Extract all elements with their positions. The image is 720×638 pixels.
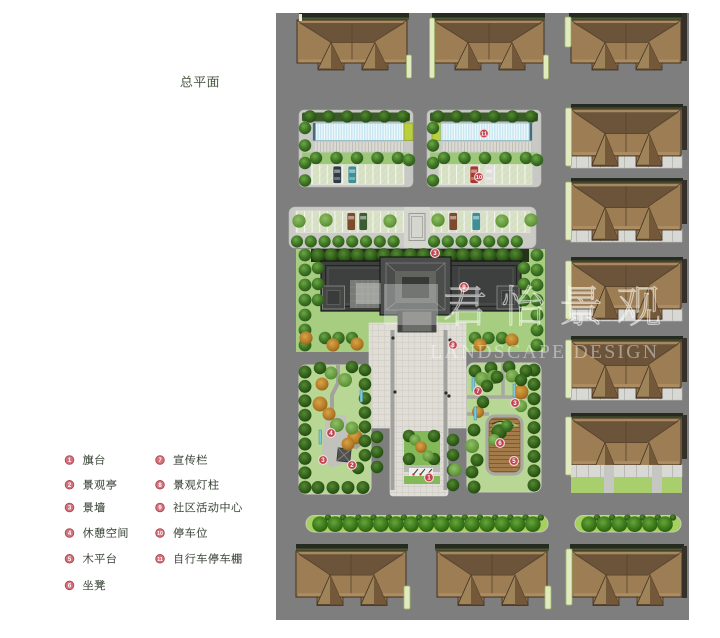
svg-text:1: 1 [427,475,431,482]
svg-text:3: 3 [513,400,517,407]
svg-text:10: 10 [157,531,163,537]
svg-text:10: 10 [476,175,482,181]
svg-text:11: 11 [157,557,163,563]
svg-text:6: 6 [498,440,502,447]
svg-text:LANDSCAPE DESIGN: LANDSCAPE DESIGN [430,341,659,363]
svg-text:3: 3 [433,250,437,257]
svg-text:7: 7 [476,388,480,395]
svg-text:11: 11 [481,132,487,138]
svg-text:4: 4 [329,430,333,437]
svg-text:3: 3 [321,457,325,464]
svg-text:2: 2 [350,462,354,469]
svg-text:5: 5 [512,458,516,465]
